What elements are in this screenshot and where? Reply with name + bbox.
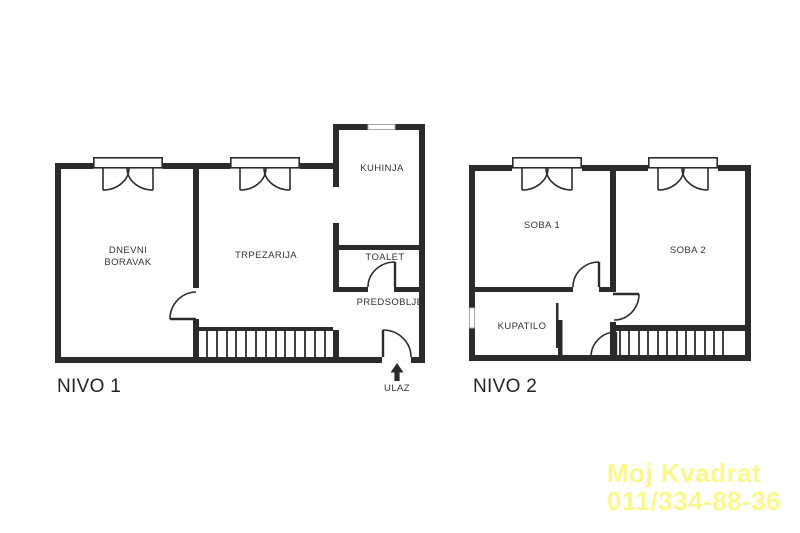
room-label-kitchen: KUHINJA (360, 163, 403, 175)
room-label-room2: SOBA 2 (670, 245, 706, 257)
nivo2-stairs (620, 331, 723, 355)
floor1-title: NIVO 1 (57, 377, 121, 396)
nivo2-window-bathroom (470, 308, 475, 328)
room-label-toilet: TOALET (365, 252, 404, 264)
room-label-living: DNEVNI BORAVAK (104, 245, 151, 269)
watermark-brand: Moj Kvadrat (607, 460, 761, 486)
nivo1-door-entrance (383, 330, 411, 357)
nivo1-door-toilet (368, 262, 395, 287)
entrance-arrow-icon (391, 363, 404, 381)
floor2-title: NIVO 2 (473, 377, 537, 396)
nivo2-window-room1 (512, 158, 582, 190)
watermark-phone: 011/334-88-36 (607, 488, 781, 514)
room-label-dining: TRPEZARIJA (235, 250, 297, 262)
room-label-bathroom: KUPATILO (498, 321, 547, 333)
floor-plan-canvas: DNEVNI BORAVAK TRPEZARIJA KUHINJA TOALET… (0, 0, 800, 533)
room-label-hall: PREDSOBLJE (357, 297, 424, 309)
room-label-room1: SOBA 1 (524, 220, 560, 232)
nivo1-window-dining (230, 158, 300, 190)
nivo2-window-room2 (648, 158, 718, 190)
nivo1-door-living (170, 292, 196, 319)
nivo1-window-kitchen (368, 125, 395, 130)
nivo1-window-living (93, 158, 163, 190)
nivo2-door-room2 (613, 294, 639, 320)
entrance-label: ULAZ (384, 383, 410, 395)
nivo2-door-room1 (573, 262, 599, 287)
nivo1-stairs (207, 331, 325, 357)
